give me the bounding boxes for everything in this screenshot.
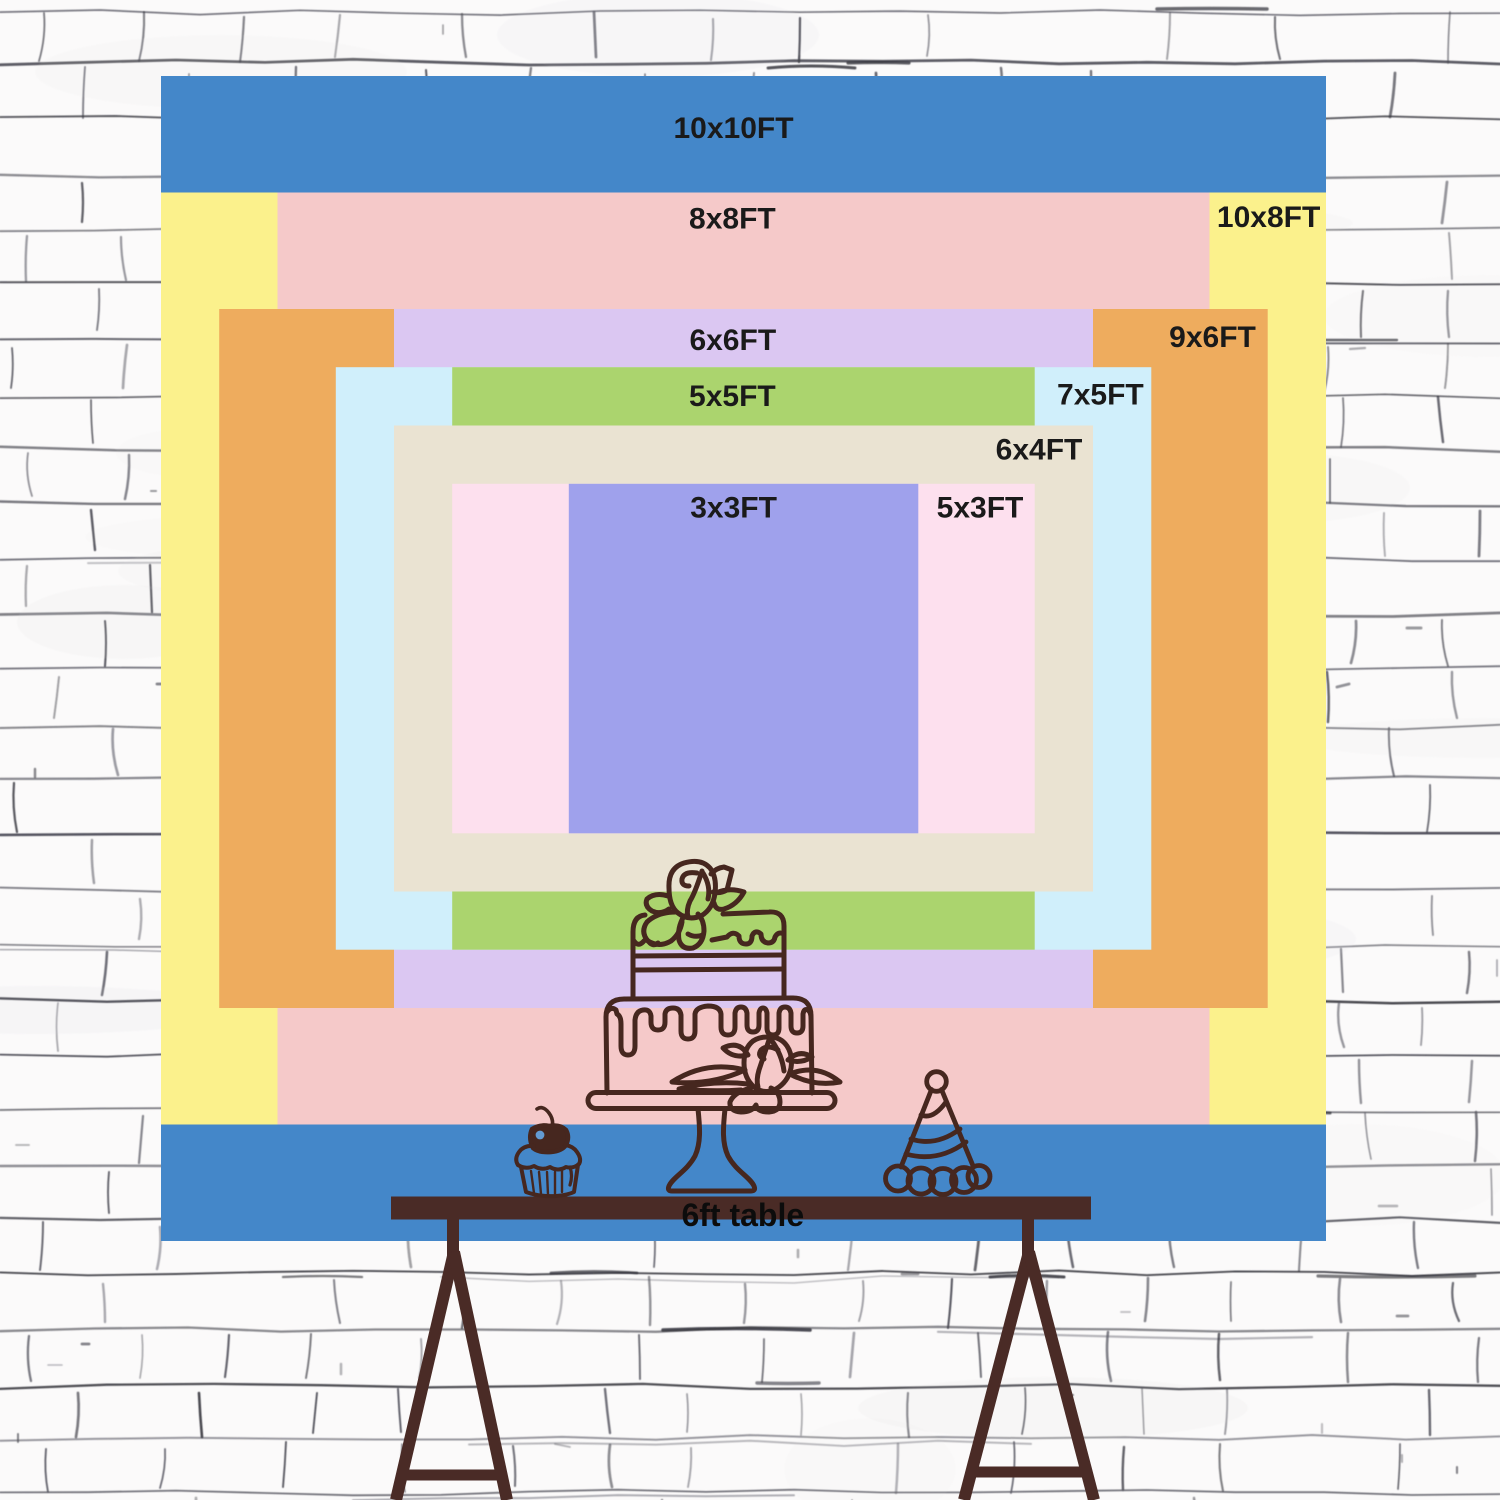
svg-text:9x6FT: 9x6FT	[1169, 321, 1256, 354]
svg-text:10x8FT: 10x8FT	[1217, 201, 1320, 234]
svg-text:8x8FT: 8x8FT	[689, 203, 776, 236]
svg-text:10x10FT: 10x10FT	[673, 112, 793, 145]
svg-text:6x6FT: 6x6FT	[689, 324, 776, 357]
svg-text:6ft table: 6ft table	[681, 1197, 804, 1233]
svg-text:7x5FT: 7x5FT	[1057, 379, 1144, 412]
svg-text:6x4FT: 6x4FT	[996, 434, 1083, 467]
svg-text:5x3FT: 5x3FT	[937, 492, 1024, 525]
svg-text:5x5FT: 5x5FT	[689, 380, 776, 413]
svg-text:3x3FT: 3x3FT	[690, 492, 777, 525]
